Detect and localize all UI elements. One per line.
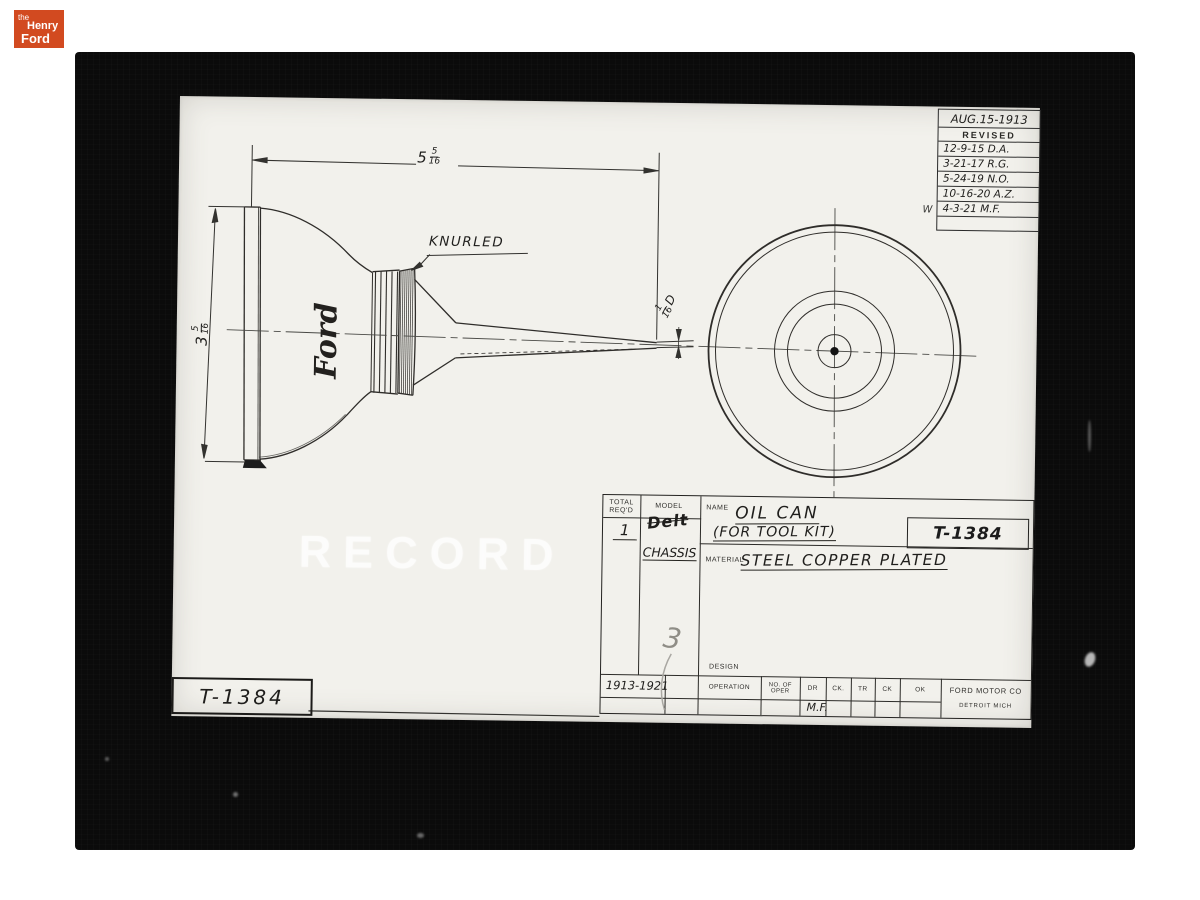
title-block-divider — [638, 495, 642, 674]
width-dimension: 5 5 16 — [417, 147, 440, 167]
op-header-ck1: CK. — [826, 677, 851, 700]
op-header-no-of-oper: NO. OF OPER — [761, 676, 800, 700]
corner-part-number: T-1384 — [199, 684, 285, 709]
op-header-operation: OPERATION — [698, 675, 761, 699]
width-dimension-fraction: 5 16 — [429, 147, 441, 167]
margin-note-w: W — [922, 204, 932, 215]
part-number-box: T-1384 — [907, 517, 1029, 550]
company-name: FORD MOTOR CO — [941, 684, 1031, 697]
knurled-label: KNURLED — [429, 233, 504, 250]
op-header-dr: DR — [800, 677, 826, 700]
record-watermark: RECORD — [298, 526, 566, 582]
revision-table: AUG.15-1913 REVISED 12-9-15 D.A. 3-21-17… — [936, 109, 1041, 232]
company-city: DETROIT MICH — [940, 700, 1030, 713]
photograph-of-ford-drawing: the Henry Ford — [0, 0, 1200, 900]
film-speck — [233, 792, 238, 797]
title-block: TOTAL REQ'D MODEL NAME MATERIAL DESIGN 1… — [599, 494, 1034, 720]
film-scratch — [1088, 420, 1091, 452]
revision-entry: 12-9-15 D.A. — [938, 142, 1039, 158]
part-number: T-1384 — [933, 523, 1003, 544]
height-dimension-whole: 3 — [193, 336, 211, 346]
total-reqd-value: 1 — [613, 521, 637, 540]
revision-title: REVISED — [938, 128, 1039, 143]
pencil-flourish — [650, 652, 681, 712]
material-label: MATERIAL — [706, 556, 745, 564]
revision-empty-row — [937, 217, 1038, 231]
total-reqd-label-line1: TOTAL — [609, 499, 634, 506]
film-speck — [1083, 651, 1098, 669]
width-dimension-whole: 5 — [417, 148, 427, 166]
name-label: NAME — [706, 504, 728, 511]
henry-ford-logo: the Henry Ford — [14, 10, 64, 48]
height-dimension: 3 5 16 — [191, 309, 212, 359]
op-header-ck2: CK — [875, 678, 900, 701]
revision-entry: 4-3-21 M.F. — [937, 202, 1038, 218]
logo-word-ford: Ford — [21, 32, 50, 45]
model-label: MODEL — [655, 503, 683, 510]
dr-value: M.F. — [806, 701, 828, 714]
revision-entry: 3-21-17 R.G. — [938, 157, 1039, 173]
name-value: OIL CAN — [735, 503, 819, 524]
total-reqd-label-line2: REQ'D — [609, 507, 633, 514]
design-label: DESIGN — [709, 663, 739, 670]
revision-entry: 10-16-20 A.Z. — [938, 187, 1039, 203]
material-value: STEEL COPPER PLATED — [741, 551, 948, 571]
model-value: CHASSIS — [643, 545, 697, 562]
height-dimension-fraction: 5 16 — [192, 323, 212, 335]
pencil-note: 3 — [661, 621, 684, 656]
film-speck — [105, 757, 109, 761]
model-crossed-out: Delt — [646, 510, 689, 533]
revision-date: AUG.15-1913 — [939, 110, 1040, 129]
corner-part-number-box: T-1384 — [171, 677, 313, 716]
op-header-tr: TR — [851, 677, 875, 700]
knurl-hatching — [399, 269, 413, 395]
op-header-ok: OK — [900, 678, 941, 702]
name-value-2: (FOR TOOL KIT) — [713, 524, 836, 541]
ford-script-logo: Ford — [308, 295, 344, 385]
revision-entry: 5-24-19 N.O. — [938, 172, 1039, 188]
film-speck — [417, 833, 424, 838]
drawing-sheet: KNURLED Ford 5 5 16 3 5 16 1 16 D RECORD — [171, 96, 1040, 728]
